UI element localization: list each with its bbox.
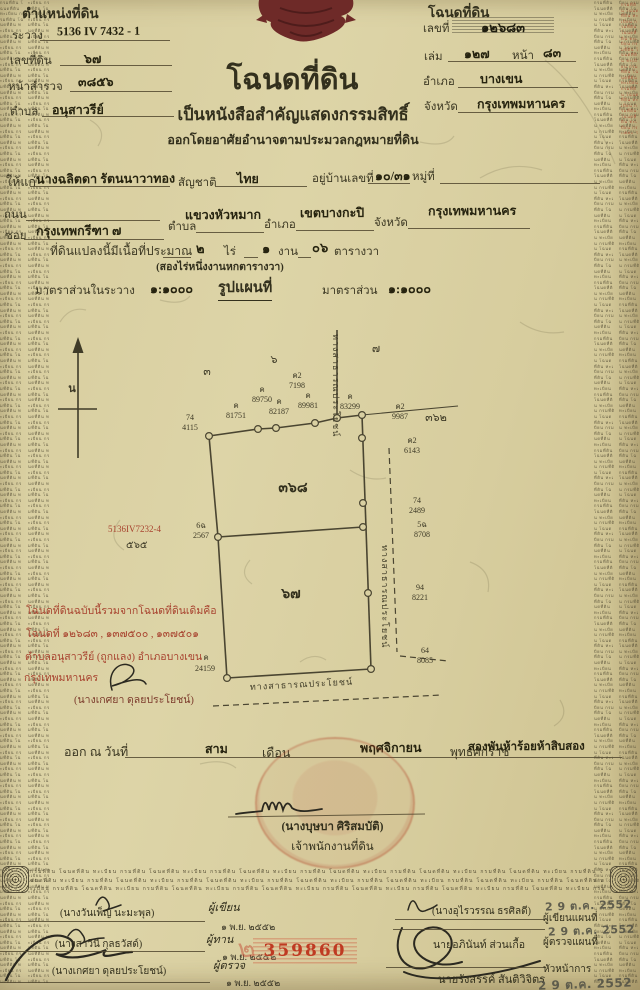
north-label: น [68,383,76,395]
survey-marker-labels: 744115 ค81751 ค89750 ค82187 ค27198 ค8998… [182,371,433,673]
serial-number: 359860 [253,938,357,964]
grant-amphoe-value: เขตบางกะปิ [300,203,364,223]
map-checker-line [393,929,545,930]
svg-text:ค2: ค2 [407,436,416,445]
svg-text:82187: 82187 [269,407,289,416]
survey-value: ๓๘๕๖ [78,72,114,92]
grant-section: ให้แก่ นางฉลิตดา รัตนนาวาทอง สัญชาติ ไทย… [0,160,640,280]
writer-name: (นางวันเพ็ญ นะมะพุล) [60,906,154,921]
merge-note-signature [111,664,146,690]
checker-name: (นางสาวินี กุลธวัสด์) [55,937,142,952]
map-sheet-ref: 5136IV7232-4 [108,524,161,534]
merge-note-line3: ตำบลอนุสาวรีย์ (ถูกแลง) อำเภอบางเขน [25,648,202,665]
deed-number-value: ๑๒๖๘๓ [452,17,554,33]
checker-role: ผู้ทาน [206,930,233,948]
rosette-ornament-right [610,866,637,893]
svg-text:24159: 24159 [195,664,215,673]
svg-text:7198: 7198 [289,381,305,390]
road-label: ถนน [4,206,27,224]
grant-tambon-underline [196,232,264,233]
map-checker-role: ผู้ตรวจแผนที่ [543,935,598,950]
province-underline [458,112,578,113]
scale-map-label: มาตราส่วน [322,282,377,300]
nationality-underline [215,186,307,187]
boundary-markers [206,412,375,682]
chief-name: นายรังสรรค์ สันติวิจิตร [438,970,545,988]
right-road-label: ทางสาธารณประโยชน์ [380,545,391,648]
grant-province-value: กรุงเทพมหานคร [428,201,516,222]
adjacent-parcel-3: ๗ [372,343,380,355]
deed-number-label: เลขที่ [423,20,449,38]
parcel-no-label: เลขที่ดิน [10,52,52,70]
svg-text:ค: ค [347,392,352,401]
svg-text:74: 74 [413,496,421,505]
chief-date-stamp: 2 9 ต.ค. 2552 [538,973,640,990]
survey-label: หน้าสำรวจ [8,78,63,96]
position-block-title: ตำแหน่งที่ดิน [22,2,99,24]
svg-text:6143: 6143 [404,446,420,455]
house-no-label: อยู่บ้านเลขที่ [312,170,374,188]
scale-in-sheet-value: ๑:๑๐๐๐ [150,279,193,299]
soi-underline [24,239,164,240]
grant-amphoe-label: อำเภอ [264,216,296,234]
bottom-road-dashed [213,695,442,706]
svg-text:4115: 4115 [182,423,198,432]
parcel-no-value: ๖๗ [84,49,101,69]
tambon-value: อนุสาวรีย์ [52,100,104,120]
svg-text:ค: ค [233,401,238,410]
svg-text:6ฉ: 6ฉ [196,521,206,530]
security-microtext-right-red: กรมที่ดิน โฉนดที่ดิน ทะเบียน กรมที่ดิน โ… [621,2,639,134]
examiner-line [0,982,210,983]
map-checker-name: นายอภินันท์ ส่วนเกื้อ [433,936,525,953]
security-band-bottom: กรมที่ดิน โฉนดที่ดิน ทะเบียน กรมที่ดิน โ… [30,868,606,894]
svg-text:9987: 9987 [392,412,408,421]
map-sheet-ref2: ๕๖๕ [126,540,148,551]
area-wa-value: ๐๖ [312,237,328,258]
adjacent-parcel-4: ๓๖๒ [425,412,447,424]
volume-underline [448,61,576,62]
svg-text:ค: ค [259,385,264,394]
svg-text:5ฉ: 5ฉ [417,520,427,529]
sheet-label: ระวาง [12,27,43,45]
land-title-deed-page: กรมที่ดิน โฉนดที่ดิน ทะเบียน กรมที่ดิน โ… [0,0,640,990]
map-writer-line [395,919,545,920]
sheet-underline [40,40,170,41]
svg-text:83299: 83299 [340,402,360,411]
deed-block: โฉนดที่ดิน เลขที่ ๑๒๖๘๓ เล่ม ๑๒๗ หน้า ๘๓… [420,0,605,120]
amphoe-underline [458,87,578,88]
svg-text:2567: 2567 [193,531,209,540]
left-boundary-lower [218,537,227,678]
rosette-ornament-left [2,866,29,893]
amphoe-label: อำเภอ [423,73,455,91]
scale-map-value: ๑:๑๐๐๐ [388,279,431,299]
bottom-road-label: ทางสาธารณประโยชน์ [250,676,354,692]
page-label: หน้า [512,47,534,65]
svg-text:8708: 8708 [414,530,430,539]
svg-text:ค: ค [276,397,281,406]
deed-subtitle: เป็นหนังสือสำคัญแสดงกรรมสิทธิ์ [148,102,438,128]
upper-road-label: ทางสาธารณประโยชน์ [331,334,342,437]
soi-label: ซอย [5,227,26,245]
svg-text:94: 94 [416,583,424,592]
officer-signature-line [228,814,425,817]
garuda-emblem [250,0,362,50]
middle-boundary-line [218,527,363,537]
volume-label: เล่ม [424,48,443,66]
grantee-label: ให้แก่ [6,172,36,192]
merge-note-line4: กรุงเทพมหานคร [24,669,98,686]
grant-province-label: จังหวัด [374,214,408,232]
grant-amphoe-underline [296,230,374,231]
officer-title: เจ้าพนักงานที่ดิน [240,838,425,856]
svg-text:ค: ค [203,653,208,662]
svg-text:74: 74 [186,413,194,422]
tambon-label: ตำบล [10,103,38,121]
examiner-date: ๑ พ.ย. ๒๕๕๒ [226,976,280,990]
grant-tambon-value: แขวงหัวหมาก [185,205,261,226]
nationality-label: สัญชาติ [178,174,217,192]
parcel-upper-number: ๓๖๘ [278,481,307,496]
parcel-lower-number: ๖๗ [280,587,300,602]
writer-line [0,921,205,922]
right-boundary-line [362,415,371,669]
svg-text:2489: 2489 [409,506,425,515]
moo-underline [440,183,600,184]
map-title: รูปแผนที่ [218,276,272,301]
svg-text:89750: 89750 [252,395,272,404]
parcel-no-underline [60,65,172,66]
examiner-name: (นางเกศยา ดุลยประโยชน์) [52,964,166,979]
writer-role: ผู้เขียน [208,898,240,916]
svg-text:81751: 81751 [226,411,246,420]
map-writer-name: (นางอุไรวรรณ ธรศิลดี) [432,904,531,919]
svg-text:ค2: ค2 [292,371,301,380]
svg-text:64: 64 [421,646,429,655]
chief-line [386,967,546,968]
svg-text:8221: 8221 [412,593,428,602]
area-words: (สองไร่หนึ่งงานหกตารางวา) [140,258,300,275]
adjacent-parcel-1: ๓ [203,366,211,378]
survey-underline [70,91,172,92]
merge-note-line1: โฉนดที่ดินฉบับนี้รวมจากโฉนดที่ดินเดิมคือ [26,602,217,619]
area-wa-unit: ตารางวา [334,243,379,261]
svg-text:ค2: ค2 [395,402,404,411]
svg-text:8085: 8085 [417,656,433,665]
svg-text:ค: ค [305,391,310,400]
merge-note-line2: โฉนดที่ ๑๒๖๘๓ , ๑๓๗๕๐๐ , ๑๓๗๕๐๑ [26,625,199,642]
svg-text:89981: 89981 [298,401,318,410]
scale-in-sheet-label: มาตราส่วนในระวาง [35,282,135,300]
north-arrow-head [73,337,84,353]
grant-province-underline [408,228,530,229]
grantee-underline [30,186,170,187]
merge-note-signer: (นางเกศยา ดุลยประโยชน์) [74,691,194,708]
sheet-value: 5136 IV 7432 - 1 [57,24,140,40]
deed-subtitle2: ออกโดยอาศัยอำนาจตามประมวลกฎหมายที่ดิน [152,130,434,150]
officer-signature [236,803,322,815]
house-no-underline [368,183,410,184]
area-rai-value: ๒ [196,238,205,259]
officer-name: (นางบุษบา ศิริสมบัติ) [240,818,425,836]
left-boundary-upper [209,436,218,537]
checker-line [0,951,205,952]
moo-label: หมู่ที่ [412,168,435,186]
adjacent-parcel-2: ๖ [271,354,278,366]
area-ngan-value: ๑ [262,238,270,259]
deed-title: โฉนดที่ดิน [180,56,405,102]
